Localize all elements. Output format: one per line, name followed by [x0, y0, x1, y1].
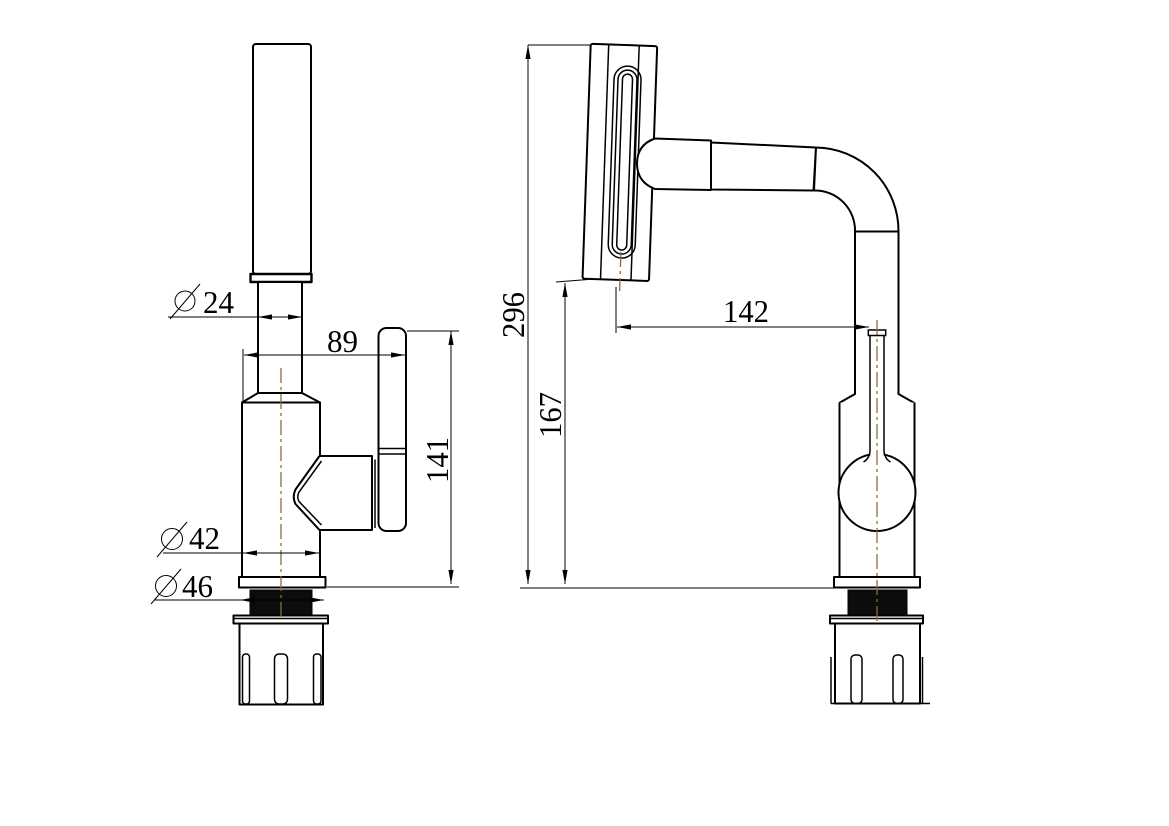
base-flange — [239, 577, 326, 588]
front-view-dimensions: 296 167 142 — [495, 45, 869, 588]
neck — [258, 282, 302, 393]
side-view — [234, 44, 407, 705]
handle-cylinder — [253, 44, 311, 274]
dim-label-base-to-head-height: 167 — [532, 392, 568, 438]
drawing-canvas: 24 89 141 42 — [0, 0, 1169, 826]
spout-arm — [711, 143, 816, 191]
dim-label-handle-height: 141 — [419, 437, 455, 483]
dimension-head-to-handle-distance: 142 — [616, 287, 869, 333]
dimension-overall-height: 296 — [495, 45, 834, 588]
dimension-base-to-head-height: 167 — [532, 280, 588, 585]
mounting-nut — [240, 624, 324, 705]
dim-label-base-thread-diameter: 46 — [182, 568, 213, 604]
dim-label-spout-diameter: 24 — [203, 284, 234, 320]
pipe-flare-right — [899, 394, 914, 403]
ball-joint — [839, 454, 916, 531]
faucet-drawing: 24 89 141 42 — [0, 0, 1169, 826]
elbow — [814, 148, 899, 232]
dim-label-spout-reach: 89 — [327, 323, 358, 359]
mounting-nut — [835, 624, 920, 704]
handle-cap-band — [251, 274, 312, 282]
dim-label-overall-height: 296 — [495, 292, 531, 338]
pipe-flare-left — [840, 394, 855, 403]
lever-handle — [379, 328, 407, 531]
dim-label-body-diameter: 42 — [189, 520, 220, 556]
front-view — [582, 44, 930, 704]
head-collar — [637, 139, 711, 191]
dim-label-head-to-handle-distance: 142 — [723, 293, 769, 329]
